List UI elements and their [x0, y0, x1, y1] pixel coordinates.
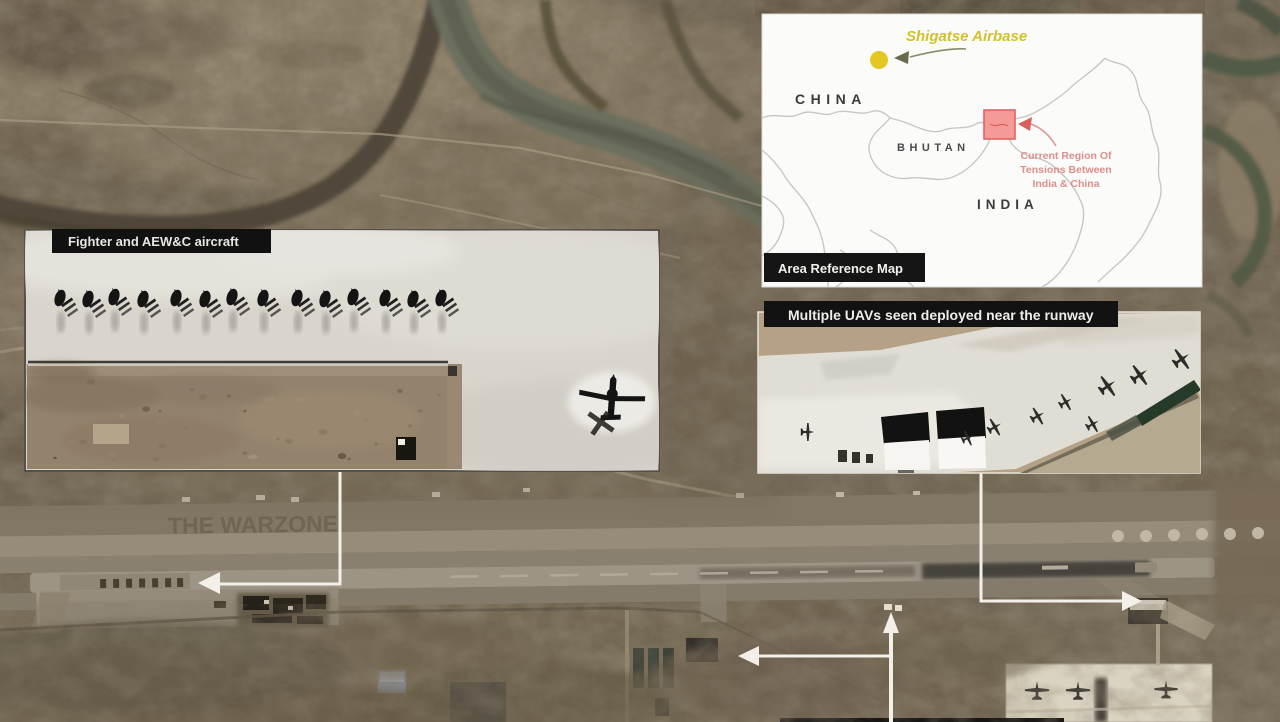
svg-text:BHUTAN: BHUTAN — [897, 142, 970, 154]
svg-text:INDIA: INDIA — [977, 197, 1039, 212]
svg-text:CHINA: CHINA — [795, 91, 867, 107]
svg-text:Fighter and AEW&C aircraft: Fighter and AEW&C aircraft — [68, 234, 239, 249]
svg-text:Current Region Of: Current Region Of — [1021, 150, 1113, 162]
svg-text:Shigatse Airbase: Shigatse Airbase — [906, 28, 1027, 45]
svg-text:Tensions Between: Tensions Between — [1020, 164, 1111, 176]
svg-text:India & China: India & China — [1032, 178, 1099, 190]
svg-text:Multiple UAVs seen deployed n: Multiple UAVs seen deployed near the run… — [788, 307, 1094, 323]
svg-text:Area Reference Map: Area Reference Map — [778, 261, 903, 276]
